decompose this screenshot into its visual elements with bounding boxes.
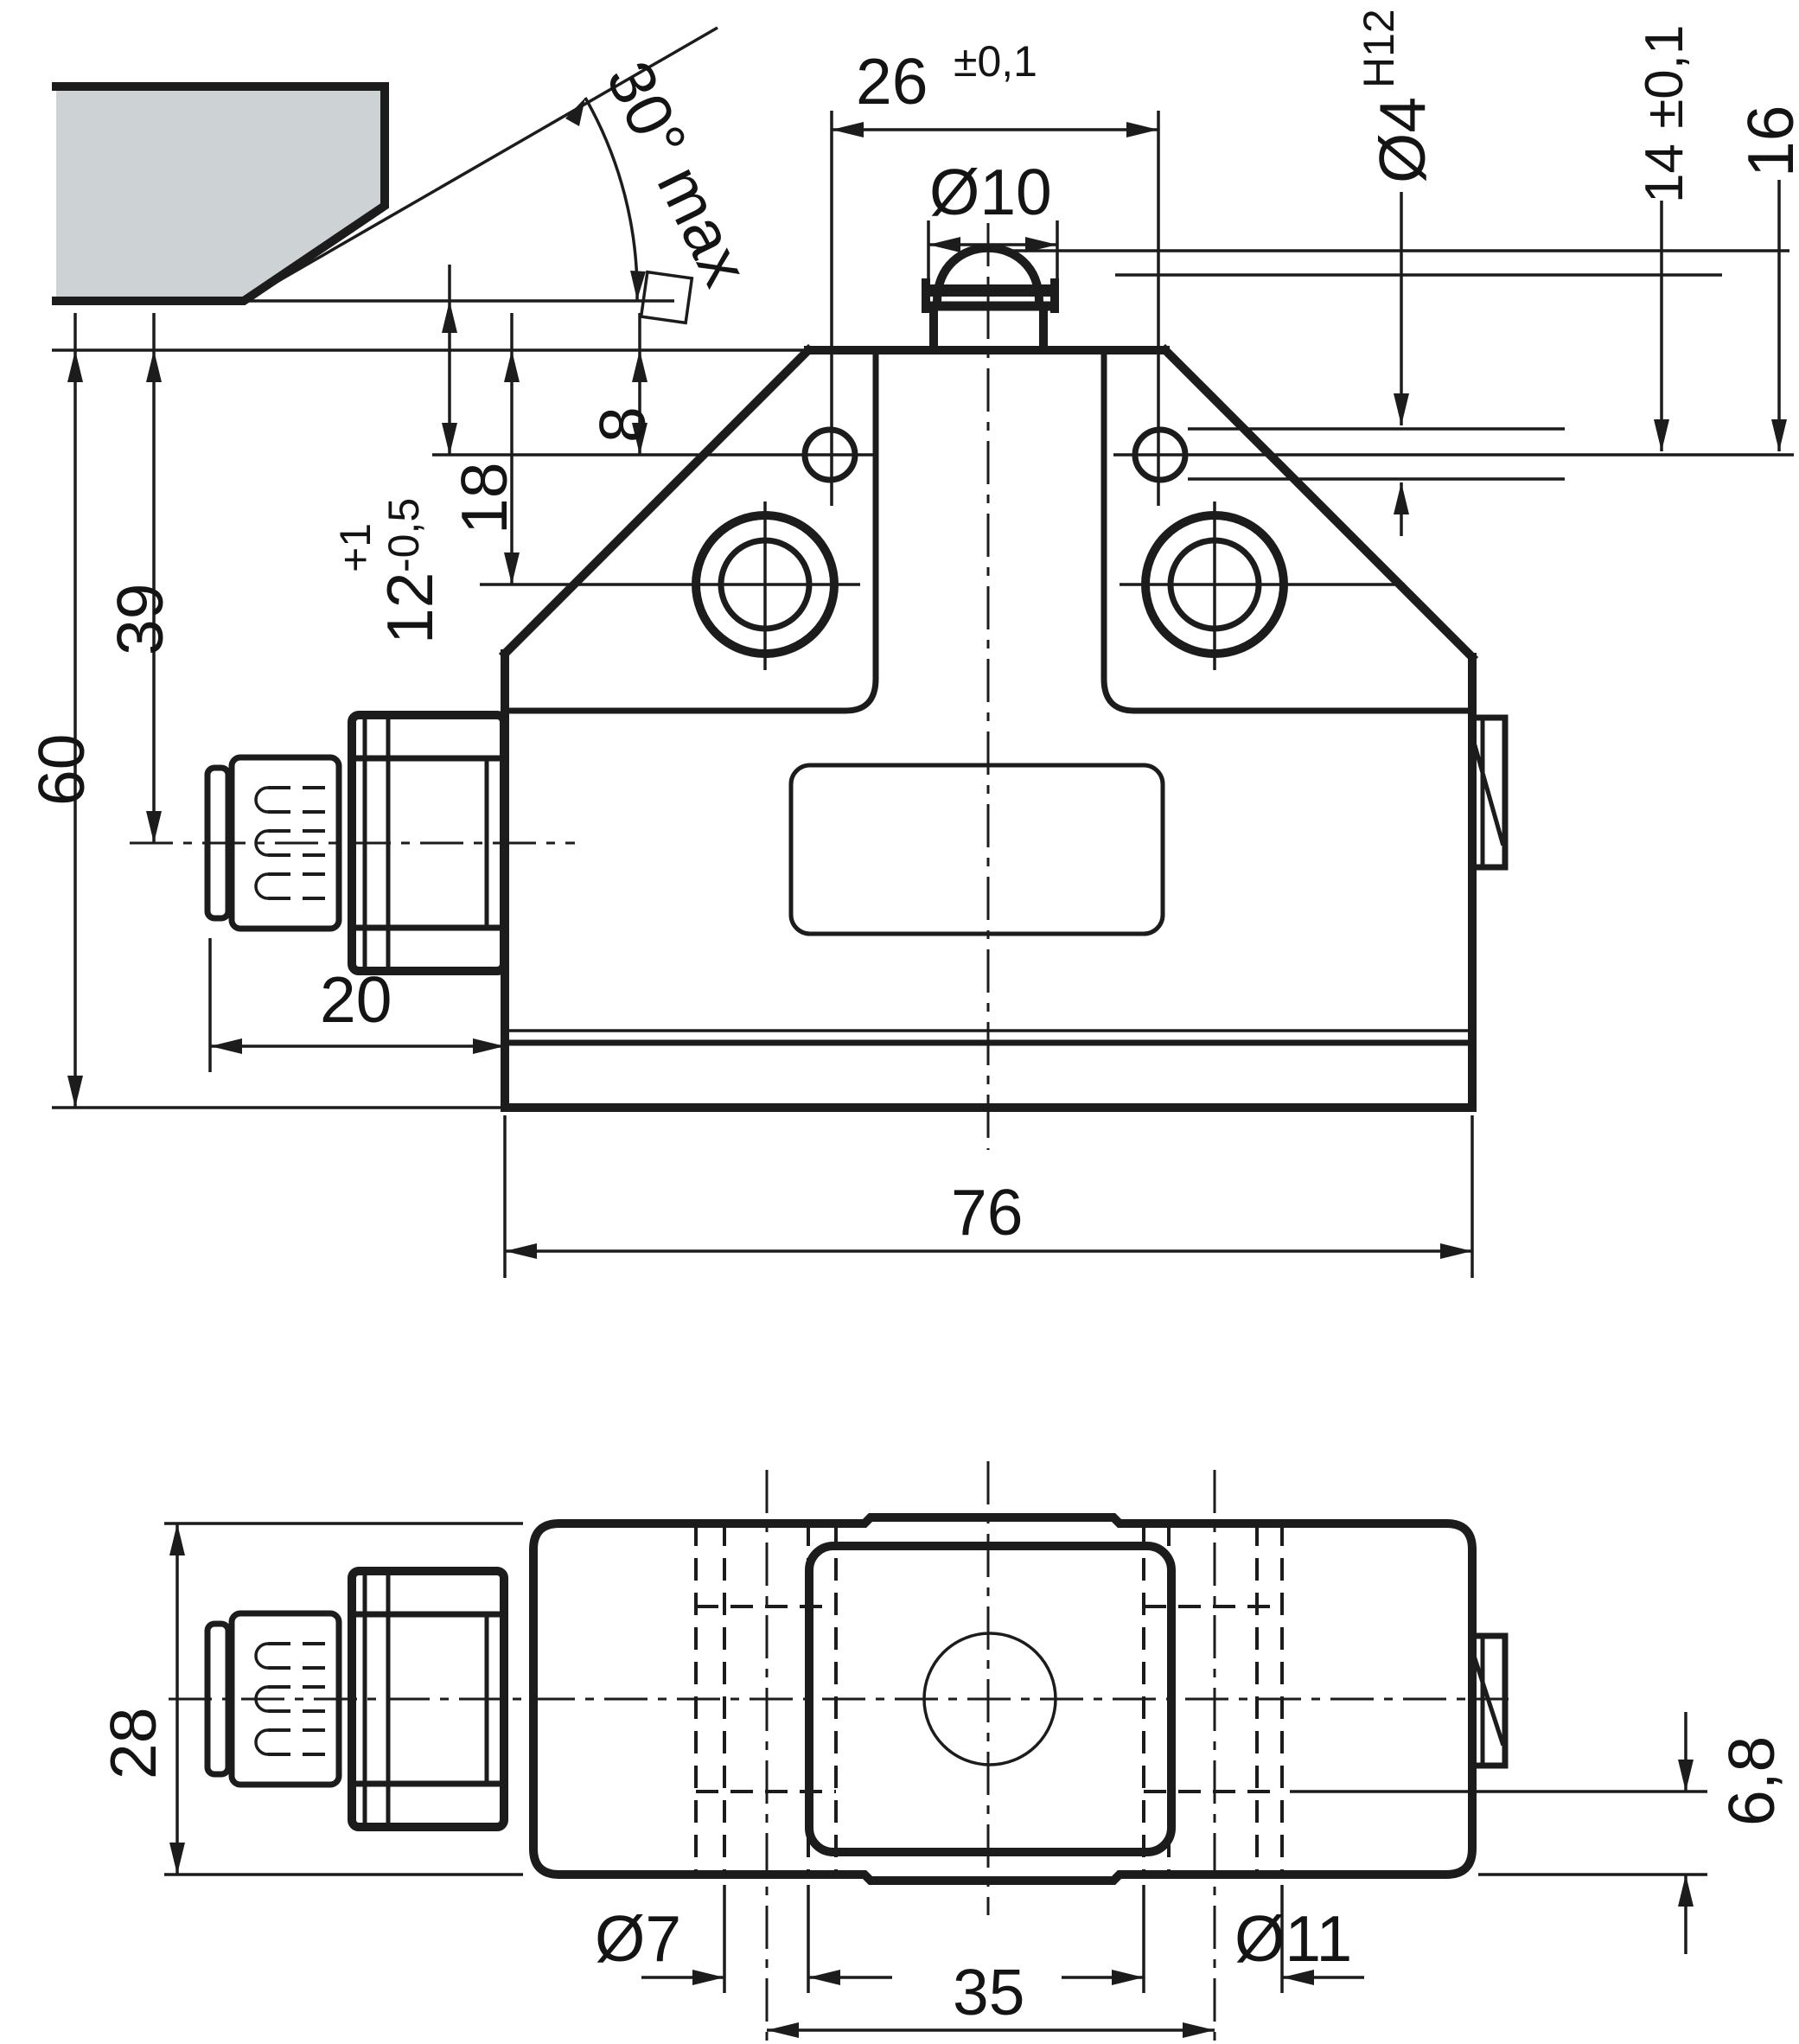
- side-screw-bottom: [1472, 1636, 1505, 1766]
- dim-26: 26 ±0,1: [832, 37, 1158, 506]
- dim-12-label: 12: [373, 572, 446, 644]
- dim-18-label: 18: [448, 463, 520, 534]
- dim-d11-label: Ø11: [1234, 1902, 1352, 1975]
- dim-d7: Ø7: [595, 1885, 892, 1993]
- dim-16-label: 16: [1734, 105, 1799, 177]
- dim-8: 8: [586, 313, 659, 455]
- dim-26-label: 26: [856, 45, 928, 118]
- head-seam-left: [505, 350, 876, 711]
- dim-12-minus: -0,5: [380, 498, 428, 572]
- dim-18: 18: [52, 313, 808, 584]
- knurl-slot-b3-end: [256, 1730, 268, 1754]
- dim-60-label: 60: [25, 734, 98, 806]
- dim-26-tol: ±0,1: [954, 37, 1037, 86]
- dim-68-label: 6,8: [1715, 1736, 1788, 1826]
- label-plate: [791, 765, 1163, 934]
- limit-switch-drawing: 30° max: [0, 0, 1799, 2044]
- dim-39-label: 39: [104, 584, 176, 655]
- dim-d4-fit-label: H12: [1355, 9, 1403, 88]
- dim-12-plus: +1: [331, 523, 380, 572]
- knurl-slot-1-end: [256, 788, 268, 812]
- dim-12: 12 +1 -0,5: [331, 265, 877, 644]
- dim-35: 35: [767, 1956, 1215, 2030]
- front-view: 30° max: [25, 9, 1799, 1278]
- dim-d7-label: Ø7: [595, 1902, 681, 1975]
- side-screw-front: [1472, 718, 1505, 867]
- dim-8-label: 8: [586, 406, 659, 443]
- body-chamfer-left: [505, 350, 808, 654]
- dim-35-label: 35: [953, 1956, 1024, 2028]
- knurl-slot-3-end: [256, 874, 268, 898]
- dim-20: 20: [210, 938, 505, 1072]
- screw-slot: [1475, 745, 1502, 843]
- dim-d10: Ø10: [928, 156, 1057, 278]
- dim-76: 76: [505, 1115, 1472, 1278]
- dim-d4-label: Ø4: [1366, 97, 1439, 183]
- flag-square-symbol: [641, 272, 692, 323]
- actuator-plate-fill: [56, 86, 385, 301]
- screw-slot-b: [1475, 1658, 1502, 1743]
- dim-39: 39: [104, 313, 176, 843]
- dim-68: 6,8: [1290, 1712, 1788, 1954]
- actuator-plate: [56, 86, 385, 301]
- dim-60: 60: [25, 313, 505, 1108]
- knurl-slot-b1-end: [256, 1644, 268, 1668]
- dim-d10-label: Ø10: [929, 156, 1052, 228]
- technical-drawing-page: 30° max: [0, 0, 1799, 2044]
- dim-76-label: 76: [951, 1176, 1023, 1249]
- dim-28-label: 28: [97, 1708, 169, 1779]
- bottom-view: 28 Ø7 Ø11 35 6,8: [97, 1461, 1788, 2041]
- dim-14-label: 14 ±0,1: [1635, 25, 1694, 203]
- plunger: [925, 248, 1056, 350]
- dim-20-label: 20: [320, 963, 392, 1036]
- mounting-holes: [480, 430, 1405, 670]
- body-chamfer-right: [1165, 350, 1472, 657]
- dim-d11: Ø11: [1062, 1885, 1364, 1993]
